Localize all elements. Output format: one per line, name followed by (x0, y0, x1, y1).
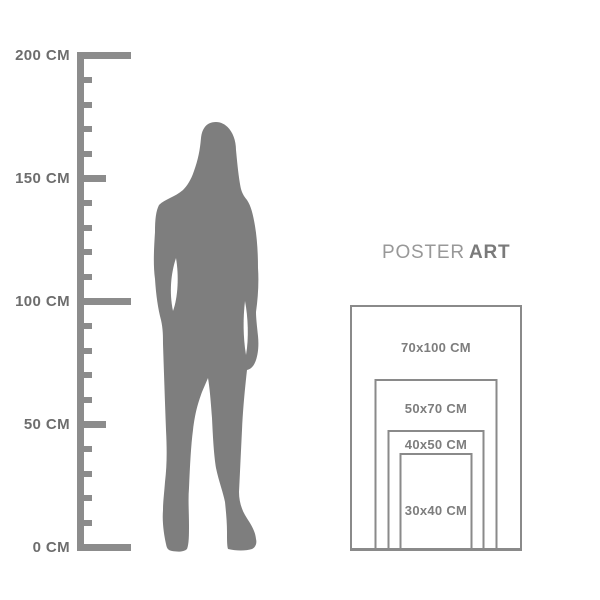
poster-frame-label: 50x70 CM (337, 401, 536, 416)
ruler-label-200cm: 200 CM (0, 48, 70, 64)
ruler-tick-70cm (77, 372, 92, 378)
standing-woman-silhouette (152, 120, 272, 560)
ruler-tick-180cm (77, 102, 92, 108)
brand-title: POSTERART (382, 243, 510, 262)
poster-size-chart: 70x100 CM 50x70 CM 40x50 CM 30x40 CM (350, 305, 522, 551)
ruler-tick-140cm (77, 200, 92, 206)
brand-title-art: ART (469, 242, 510, 263)
ruler-tick-150cm (77, 175, 106, 182)
ruler-tick-100cm (77, 298, 131, 305)
ruler-label-150cm: 150 CM (0, 171, 70, 187)
height-ruler: 200 CM150 CM100 CM50 CM0 CM (0, 0, 150, 600)
ruler-tick-40cm (77, 446, 92, 452)
ruler-label-50cm: 50 CM (0, 417, 70, 433)
ruler-tick-80cm (77, 348, 92, 354)
ruler-tick-20cm (77, 495, 92, 501)
ruler-tick-0cm (77, 544, 131, 551)
ruler-tick-200cm (77, 52, 131, 59)
ruler-tick-10cm (77, 520, 92, 526)
poster-frame-label: 40x50 CM (350, 437, 523, 452)
ruler-tick-90cm (77, 323, 92, 329)
poster-size-guide: 200 CM150 CM100 CM50 CM0 CM POSTERART 70… (0, 0, 600, 600)
silhouette-body (154, 122, 259, 552)
brand-title-poster: POSTER (382, 242, 465, 263)
poster-frame-30x40: 30x40 CM (400, 453, 473, 551)
ruler-tick-50cm (77, 421, 106, 428)
ruler-tick-170cm (77, 126, 92, 132)
ruler-tick-130cm (77, 225, 92, 231)
ruler-label-0cm: 0 CM (0, 540, 70, 556)
poster-frame-label: 70x100 CM (312, 340, 560, 355)
ruler-tick-120cm (77, 249, 92, 255)
ruler-tick-110cm (77, 274, 92, 280)
ruler-tick-30cm (77, 471, 92, 477)
poster-frame-label: 30x40 CM (362, 503, 511, 518)
ruler-label-100cm: 100 CM (0, 294, 70, 310)
ruler-tick-160cm (77, 151, 92, 157)
ruler-tick-60cm (77, 397, 92, 403)
ruler-tick-190cm (77, 77, 92, 83)
